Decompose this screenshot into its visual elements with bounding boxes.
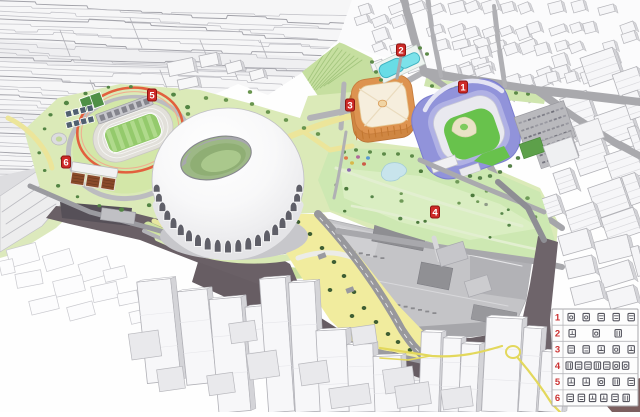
svg-text:1: 1 [555,312,561,323]
svg-text:4: 4 [555,361,561,372]
svg-text:6: 6 [555,393,560,404]
svg-text:6: 6 [63,157,68,168]
svg-text:3: 3 [347,100,352,111]
svg-text:3: 3 [555,345,560,356]
svg-text:5: 5 [555,377,561,388]
svg-text:1: 1 [460,82,466,93]
svg-text:2: 2 [398,45,403,56]
svg-text:5: 5 [149,90,155,101]
svg-text:4: 4 [432,207,438,218]
svg-text:2: 2 [555,329,560,340]
